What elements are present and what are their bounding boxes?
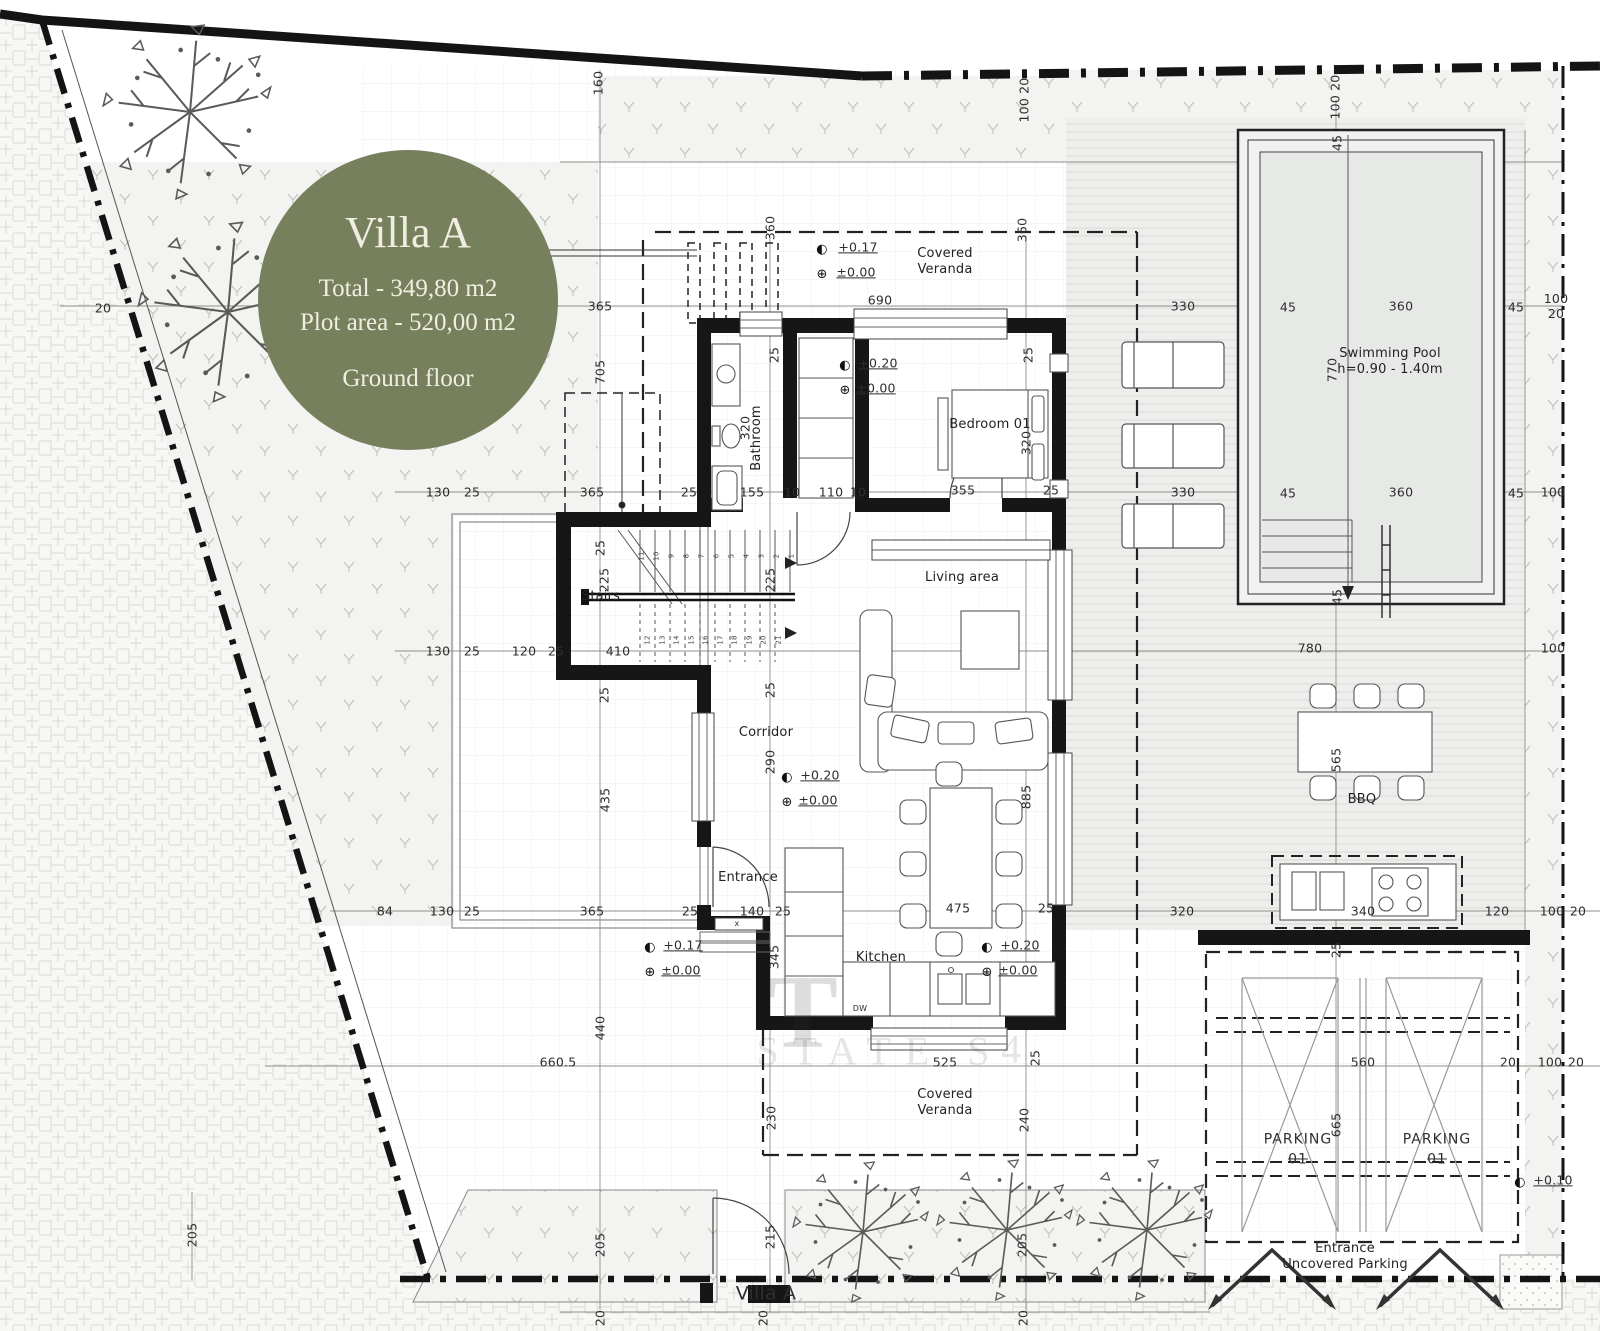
floor-plan-page: Covered VerandaCovered VerandaBedroom 01… <box>0 0 1600 1331</box>
badge-plot-area: Plot area - 520,00 m2 <box>300 306 516 340</box>
badge-title: Villa A <box>345 207 471 258</box>
site-plan-drawing <box>0 0 1600 1331</box>
project-badge: Villa A Total - 349,80 m2 Plot area - 52… <box>258 150 558 450</box>
badge-floor: Ground floor <box>342 365 473 393</box>
swimming-pool <box>1238 130 1504 618</box>
sunbeds <box>1122 342 1224 548</box>
badge-total-area: Total - 349,80 m2 <box>319 272 498 306</box>
